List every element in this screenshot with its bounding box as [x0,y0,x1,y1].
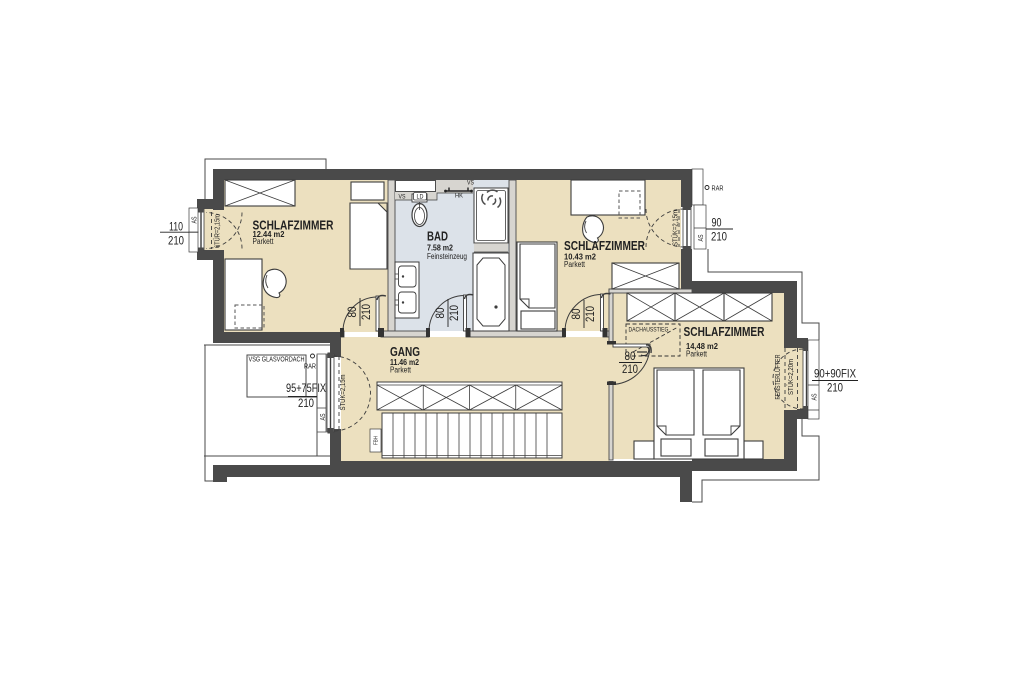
svg-text:VSG GLASVORDACH: VSG GLASVORDACH [249,357,305,364]
svg-text:6TÜR=2,15m: 6TÜR=2,15m [214,214,222,248]
svg-text:GANG: GANG [390,344,420,359]
svg-text:HK: HK [455,194,463,200]
svg-text:FBH: FBH [374,436,380,445]
svg-text:Parkett: Parkett [564,260,586,269]
svg-text:STÜK=2,15m: STÜK=2,15m [339,374,347,410]
svg-text:AS: AS [698,234,705,241]
svg-text:STÜK=2,20m: STÜK=2,20m [787,359,795,395]
svg-text:SCHLAFZIMMER: SCHLAFZIMMER [564,238,645,253]
svg-text:210: 210 [827,381,843,395]
svg-text:80: 80 [625,349,636,363]
svg-text:AS: AS [192,216,199,223]
svg-text:STÜK=2,15m: STÜK=2,15m [672,210,680,246]
svg-text:210: 210 [298,396,314,410]
svg-text:210: 210 [711,230,727,244]
svg-text:AS: AS [320,413,327,420]
svg-text:LD: LD [417,195,425,201]
svg-text:RAR: RAR [712,186,724,193]
svg-text:VS: VS [399,195,406,201]
svg-text:80: 80 [433,307,447,318]
svg-text:Parkett: Parkett [390,366,412,375]
svg-text:210: 210 [168,233,184,247]
svg-text:Parkett: Parkett [253,237,275,246]
svg-text:210: 210 [359,304,373,320]
svg-text:DACHAUSSTIEG: DACHAUSSTIEG [629,327,669,334]
svg-text:RAR: RAR [304,364,316,371]
svg-text:BAD: BAD [427,229,448,244]
svg-text:95+75FIX: 95+75FIX [286,381,326,395]
svg-text:80: 80 [569,308,583,319]
svg-text:VS: VS [467,181,474,187]
svg-text:90+90FIX: 90+90FIX [814,367,856,381]
svg-text:210: 210 [447,305,461,321]
svg-text:90: 90 [712,216,722,230]
svg-text:110: 110 [169,220,183,234]
svg-text:80: 80 [345,306,359,317]
svg-text:AS: AS [812,393,819,400]
svg-text:Feinsteinzeug: Feinsteinzeug [427,252,467,261]
svg-text:210: 210 [583,306,597,322]
svg-text:210: 210 [622,362,638,376]
svg-text:FENSTERLÜFTER: FENSTERLÜFTER [774,355,782,400]
svg-text:SCHLAFZIMMER: SCHLAFZIMMER [684,324,765,339]
svg-text:Parkett: Parkett [686,350,708,359]
